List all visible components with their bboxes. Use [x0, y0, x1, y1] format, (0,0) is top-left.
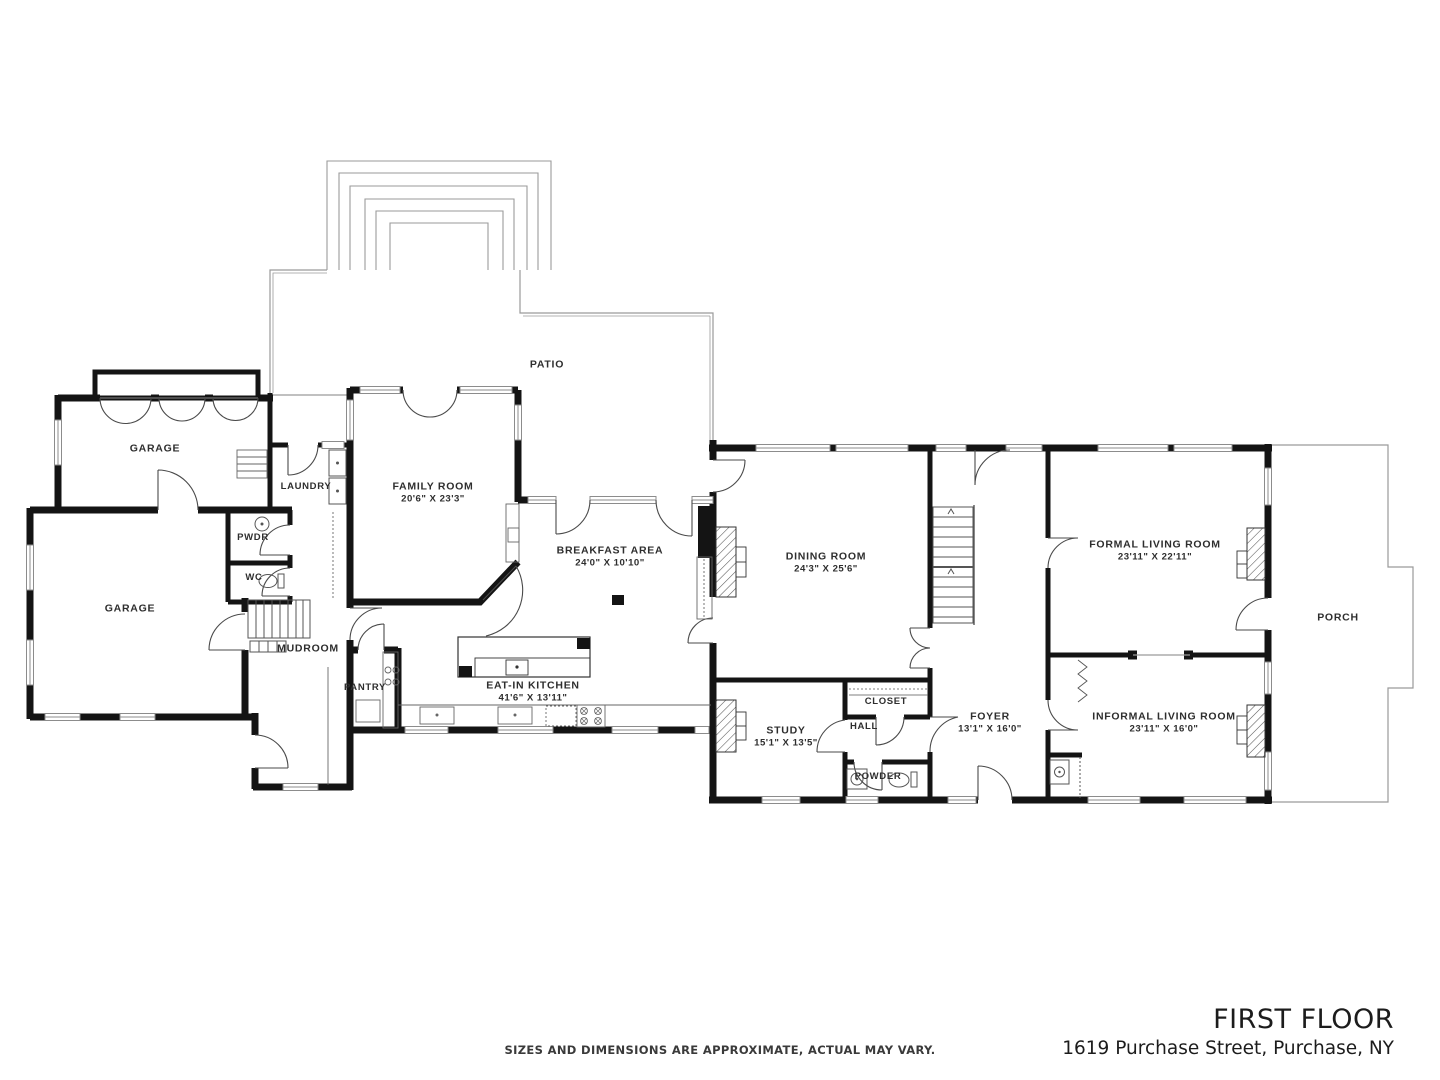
fireplace-study [716, 700, 736, 752]
plan-title: FIRST FLOOR [1062, 1004, 1394, 1035]
room-label-pantry: PANTRY [344, 682, 386, 694]
room-label-foyer: FOYER13'1" X 16'0" [958, 710, 1022, 735]
room-label-hall: HALL [850, 721, 878, 733]
kitchen-island [458, 637, 590, 677]
exterior-walls [30, 372, 1272, 804]
room-label-patio: PATIO [530, 358, 564, 371]
stove-burners [577, 705, 605, 727]
garage-door-arcs [100, 398, 258, 424]
room-label-eat-in-kitchen: EAT-IN KITCHEN41'6" X 13'11" [486, 679, 580, 704]
plan-disclaimer: SIZES AND DIMENSIONS ARE APPROXIMATE, AC… [0, 1043, 1440, 1057]
patio-steps [327, 161, 551, 270]
floorplan-canvas [0, 0, 1440, 1080]
room-label-formal-living-room: FORMAL LIVING ROOM23'11" X 22'11" [1089, 538, 1220, 563]
fireplace-informal [1247, 705, 1265, 757]
fireplace-formal [1247, 528, 1265, 580]
room-label-porch: PORCH [1317, 611, 1359, 624]
room-label-study: STUDY15'1" X 13'5" [754, 724, 818, 749]
kitchen-counter [398, 705, 711, 727]
room-label-informal-living-room: INFORMAL LIVING ROOM23'11" X 16'0" [1092, 710, 1235, 735]
room-label-powder: POWDER [855, 771, 902, 783]
room-label-dining-room: DINING ROOM24'3" X 25'6" [786, 550, 866, 575]
room-label-garage-lower: GARAGE [105, 602, 156, 615]
stairs-foyer [933, 505, 974, 625]
room-label-laundry: LAUNDRY [281, 481, 332, 493]
room-label-closet: CLOSET [865, 696, 908, 708]
stairs-laundry [237, 450, 267, 478]
interior-walls [228, 393, 1268, 800]
floor-plan: GARAGE GARAGE LAUNDRY PWDR WC MUDROOM PA… [0, 0, 1440, 1080]
room-label-pwdr: PWDR [237, 532, 269, 544]
room-label-breakfast-area: BREAKFAST AREA24'0" X 10'10" [557, 544, 664, 569]
room-label-family-room: FAMILY ROOM20'6" X 23'3" [392, 480, 473, 505]
patio-outline [270, 270, 713, 445]
room-label-garage-upper: GARAGE [130, 442, 181, 455]
fireplace-dining [716, 527, 736, 597]
room-label-mudroom: MUDROOM [277, 642, 339, 655]
room-label-wc: WC [245, 572, 262, 584]
